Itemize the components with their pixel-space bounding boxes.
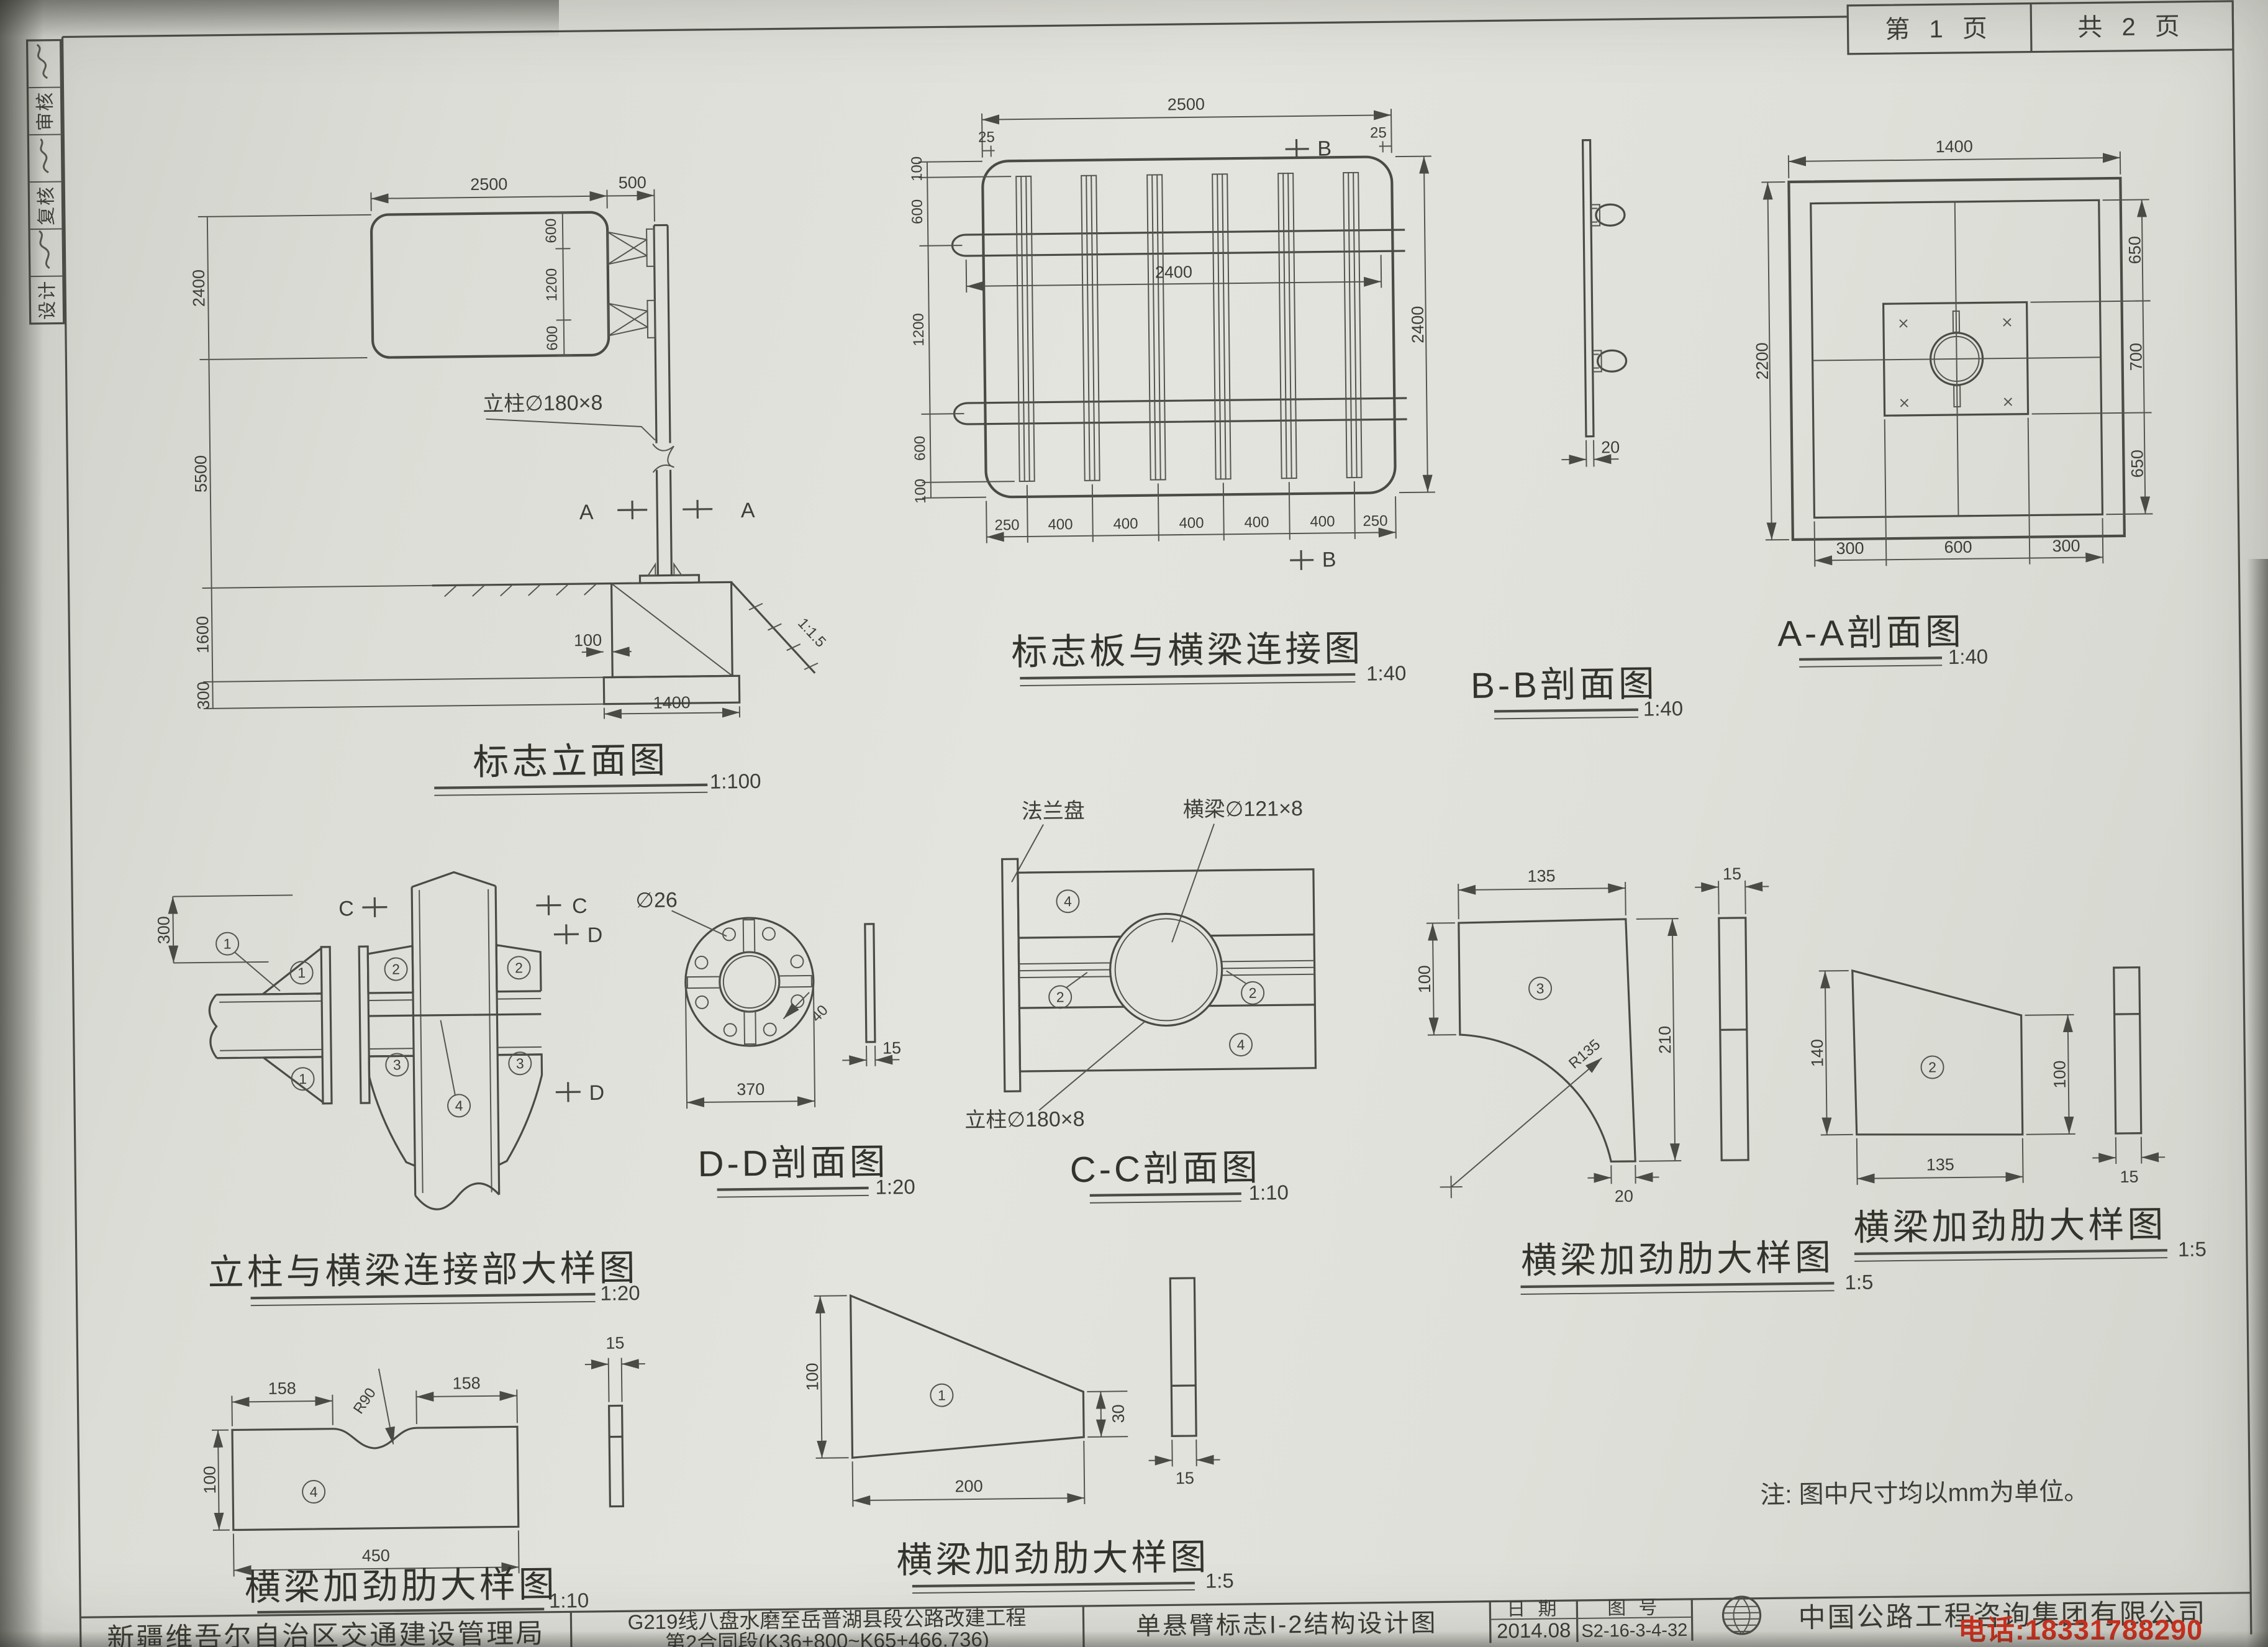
bchain-400d: 400 [1244, 514, 1269, 531]
bb-title: B-B剖面图 [1471, 663, 1658, 706]
aa-r-650b: 650 [2128, 450, 2147, 478]
lchain-600a: 600 [909, 199, 926, 224]
drawing-no-value: S2-16-3-4-32 [1581, 1620, 1687, 1641]
dim-foundation-depth: 1600 [193, 616, 212, 653]
conn-title: 立柱与横梁连接部大样图 [207, 1248, 638, 1293]
dd-title: D-D剖面图 [697, 1142, 889, 1184]
mark-c-right: C [572, 894, 587, 918]
cc-flange-label: 法兰盘 [1022, 799, 1085, 823]
rib3-dim-100: 100 [1415, 965, 1435, 993]
phone-watermark: 电话:18331788290 [1958, 1614, 2203, 1646]
dim-1200: 1200 [543, 268, 561, 302]
rib4-dim-100: 100 [201, 1466, 220, 1494]
rib4-balloon: 4 [310, 1484, 318, 1500]
aa-dim-2200: 2200 [1753, 342, 1772, 379]
dim-100-offset: 100 [574, 631, 602, 650]
drawing-rib4: 4 158 158 R90 100 450 15 [199, 1333, 648, 1616]
dd-bolt-holes [695, 927, 804, 1037]
sheet-frame: 第 1 页 共 2 页 [62, 1, 2251, 1647]
dd-scale: 1:20 [875, 1175, 915, 1199]
photographed-drawing-sheet: 第 1 页 共 2 页 审核 复核 设计 [0, 0, 2268, 1647]
aa-b-300a: 300 [1836, 539, 1864, 558]
mark-d-top: D [587, 923, 602, 947]
rib4-radius: R90 [350, 1385, 379, 1417]
aa-title: A-A剖面图 [1777, 612, 1964, 654]
drawing-post-beam-detail: 1 1 1 300 [154, 870, 640, 1310]
units-note: 注: 图中尺寸均以mm为单位。 [1760, 1478, 2089, 1509]
sheet-title: 单悬臂标志I-2结构设计图 [1136, 1610, 1438, 1641]
drawing-panel-beam-connection: 2500 25 25 B 2400 100 [908, 93, 1438, 690]
balloon-3-right: 3 [516, 1055, 524, 1071]
rib1-plate-side [1170, 1278, 1196, 1436]
rib1-scale: 1:5 [1205, 1569, 1234, 1592]
panelconn-title: 标志板与横梁连接图 [1011, 628, 1364, 673]
cc-balloon-4b: 4 [1237, 1037, 1245, 1053]
dd-dim-370: 370 [737, 1080, 764, 1099]
conn-dim-300: 300 [155, 916, 174, 944]
rib4-scale: 1:10 [549, 1589, 589, 1612]
rib1-shape [851, 1293, 1084, 1458]
aa-dim-1400: 1400 [1936, 137, 1973, 157]
dd-dim-15: 15 [882, 1038, 901, 1057]
mark-d-bottom: D [589, 1081, 604, 1105]
drawing-rib2: 2 140 100 135 15 横梁加劲肋大样图 1:5 [1807, 966, 2207, 1264]
rib1-balloon: 1 [938, 1387, 946, 1403]
sheet-linework: 第 1 页 共 2 页 审核 复核 设计 [0, 0, 2268, 1647]
rib4-dim-158a: 158 [268, 1379, 296, 1398]
elevation-top-dims: 2500 500 [371, 173, 655, 225]
dim-beam-2400: 2400 [1155, 263, 1192, 282]
rib2-dim-135: 135 [1926, 1155, 1954, 1174]
drawing-cc-section: 法兰盘 横梁∅121×8 4 4 2 2 立柱∅180×8 C-C剖面图 1:1… [961, 797, 1317, 1207]
rib2-dim-15: 15 [2120, 1168, 2138, 1186]
dd-plate-side [865, 924, 875, 1042]
sign-panel-back [982, 157, 1395, 497]
recheck-label: 复核 [36, 186, 57, 225]
bb-scale: 1:40 [1643, 697, 1684, 720]
rib4-dim-450: 450 [362, 1546, 390, 1566]
cc-post-section [1110, 913, 1223, 1026]
bb-clamp-top [1591, 204, 1625, 226]
dim-sign-height: 2400 [189, 270, 209, 307]
aa-b-600: 600 [1944, 538, 1972, 557]
cc-balloon-2a: 2 [1056, 989, 1064, 1005]
rib3-dim-135: 135 [1527, 866, 1555, 886]
org-name: 新疆维吾尔自治区交通建设管理局 [107, 1618, 545, 1647]
rib3-dim-210: 210 [1656, 1026, 1675, 1054]
cross-beams [952, 230, 1407, 424]
slope-label: 1:1.5 [794, 615, 829, 651]
rib2-dim-100: 100 [2050, 1060, 2069, 1088]
dim-post-height: 5500 [191, 455, 211, 492]
balloon-1-leader: 1 [224, 936, 232, 952]
dim-1400-footing: 1400 [653, 693, 691, 712]
panelconn-left-chain: 100 600 1200 600 100 [909, 155, 1015, 504]
bchain-400b: 400 [1113, 515, 1138, 532]
drawing-rib3: 3 135 100 210 20 R135 [1414, 863, 1874, 1299]
aa-b-300b: 300 [2052, 537, 2080, 556]
vertical-rails [1016, 173, 1362, 481]
lchain-100b: 100 [912, 479, 929, 504]
mark-c-left: C [338, 897, 354, 920]
date-value: 2014.08 [1497, 1618, 1571, 1642]
dim-25-right: 25 [1370, 124, 1387, 141]
dd-slots [687, 919, 812, 1045]
dim-right-2400: 2400 [1408, 306, 1428, 343]
rib3-title: 横梁加劲肋大样图 [1521, 1237, 1835, 1281]
balloon-2-right: 2 [515, 960, 523, 976]
design-signature [39, 231, 50, 268]
elevation-title: 标志立面图 [473, 740, 669, 783]
aa-r-700: 700 [2126, 343, 2146, 371]
panelconn-scale: 1:40 [1366, 661, 1407, 685]
rib2-scale: 1:5 [2178, 1237, 2207, 1261]
cc-title: C-C剖面图 [1069, 1148, 1261, 1190]
rib4-title: 横梁加劲肋大样图 [244, 1564, 558, 1608]
rib2-title: 横梁加劲肋大样图 [1853, 1204, 2167, 1248]
beam-end-plate [321, 947, 332, 1104]
elevation-scale: 1:100 [710, 769, 761, 793]
rib4-dim-15: 15 [606, 1333, 624, 1352]
balloon-2-left: 2 [392, 961, 400, 977]
rib3-balloon: 3 [1536, 981, 1545, 997]
column-view [358, 871, 543, 1210]
aa-scale: 1:40 [1948, 645, 1989, 668]
rib3-plate-side [1719, 918, 1748, 1160]
design-label: 设计 [37, 280, 58, 320]
bb-panel-plate [1583, 140, 1594, 437]
dim-panel-width: 2500 [470, 175, 507, 194]
cc-balloon-2b: 2 [1249, 985, 1257, 1001]
rib1-dim-100: 100 [803, 1363, 822, 1391]
rib3-shape [1459, 919, 1635, 1163]
rib1-dim-200: 200 [955, 1477, 982, 1496]
lchain-100a: 100 [909, 157, 925, 181]
balloon-4: 4 [455, 1097, 463, 1114]
mark-b-top: B [1317, 137, 1331, 160]
page-number: 第 1 页 [1885, 15, 1994, 43]
cc-balloon-4a: 4 [1064, 893, 1072, 909]
balloon-1-upper: 1 [297, 964, 306, 981]
foundation: 1:1.5 100 1400 [432, 581, 830, 721]
panel-clamps [607, 229, 655, 338]
rib3-radius: R135 [1566, 1037, 1603, 1073]
drawing-dd-section: ∅26 40 370 15 D-D剖面图 1:20 [635, 886, 915, 1201]
rib4-dim-158b: 158 [452, 1374, 480, 1393]
page-total: 共 2 页 [2077, 13, 2186, 42]
rib4-plate-side [609, 1405, 624, 1506]
dim-25-left: 25 [978, 129, 995, 145]
section-a-marks: A A [579, 499, 755, 524]
rib3-scale: 1:5 [1844, 1271, 1873, 1294]
lchain-600b: 600 [912, 436, 928, 461]
dim-post-offset: 500 [619, 173, 646, 193]
elevation-panel-chain: 600 1200 600 [543, 212, 572, 355]
review-signature [37, 45, 48, 78]
drawing-sign-elevation: 2500 500 600 1200 600 [188, 171, 831, 799]
drawing-rib1: 1 100 30 200 15 横梁加劲肋大样图 1:5 [802, 1277, 1234, 1597]
cc-post-label: 立柱∅180×8 [964, 1107, 1085, 1132]
rib4-shape [232, 1427, 519, 1530]
aa-r-650a: 650 [2125, 236, 2144, 264]
project-name-line2: 第2合同段(K36+800~K65+466.736) [665, 1628, 989, 1647]
dd-hole-label: ∅26 [635, 888, 678, 912]
bchain-400a: 400 [1048, 516, 1073, 533]
drawing-bb-section: 20 B-B剖面图 1:40 [1464, 139, 1683, 722]
recheck-signature [40, 139, 48, 173]
bchain-400e: 400 [1310, 513, 1335, 530]
bb-dim-20: 20 [1601, 438, 1620, 456]
balloon-3-left: 3 [393, 1056, 401, 1073]
post [636, 225, 699, 583]
rib1-dim-15: 15 [1176, 1469, 1194, 1487]
mark-a-right: A [741, 499, 755, 522]
panelconn-top-dims: 2500 25 25 B [978, 93, 1392, 165]
rib3-dim-15: 15 [1723, 864, 1741, 883]
approval-strip: 审核 复核 设计 [27, 40, 64, 324]
conn-scale: 1:20 [600, 1281, 640, 1305]
post-size-label: 立柱∅180×8 [483, 391, 603, 416]
drawing-no-label: 图 号 [1607, 1597, 1661, 1618]
bchain-400c: 400 [1179, 515, 1204, 532]
rib2-shape [1853, 969, 2023, 1137]
dim-600-top: 600 [543, 218, 560, 243]
bb-clamp-bottom [1592, 350, 1626, 372]
rib3-dim-20: 20 [1615, 1187, 1633, 1205]
review-label: 审核 [35, 91, 57, 131]
rib1-title: 横梁加劲肋大样图 [896, 1537, 1210, 1581]
dd-flange-disc [685, 917, 814, 1046]
cc-scale: 1:10 [1248, 1181, 1289, 1204]
dd-dim-40: 40 [808, 1002, 832, 1025]
rib2-dim-140: 140 [1808, 1039, 1827, 1067]
bchain-250a: 250 [994, 517, 1019, 533]
date-label: 日 期 [1507, 1599, 1561, 1620]
rib1-dim-30: 30 [1109, 1404, 1128, 1423]
bchain-250b: 250 [1363, 512, 1387, 529]
company-logo [1723, 1597, 1761, 1635]
rib2-balloon: 2 [1928, 1059, 1936, 1075]
balloon-1-lower: 1 [299, 1071, 307, 1087]
mark-b-bottom: B [1322, 548, 1336, 571]
mark-a-left: A [579, 501, 594, 524]
lchain-1200: 1200 [910, 313, 928, 347]
cc-beam-label: 横梁∅121×8 [1183, 797, 1304, 822]
drawing-aa-section: 1400 2200 650 700 650 [1751, 135, 2155, 670]
dim-2500: 2500 [1168, 95, 1205, 114]
sign-panel [371, 212, 609, 358]
elevation-left-chain: 2400 5500 1600 300 [189, 212, 604, 710]
dim-slab-300: 300 [194, 681, 213, 709]
dim-600-bottom: 600 [544, 325, 561, 350]
rib2-plate-side [2114, 968, 2141, 1133]
